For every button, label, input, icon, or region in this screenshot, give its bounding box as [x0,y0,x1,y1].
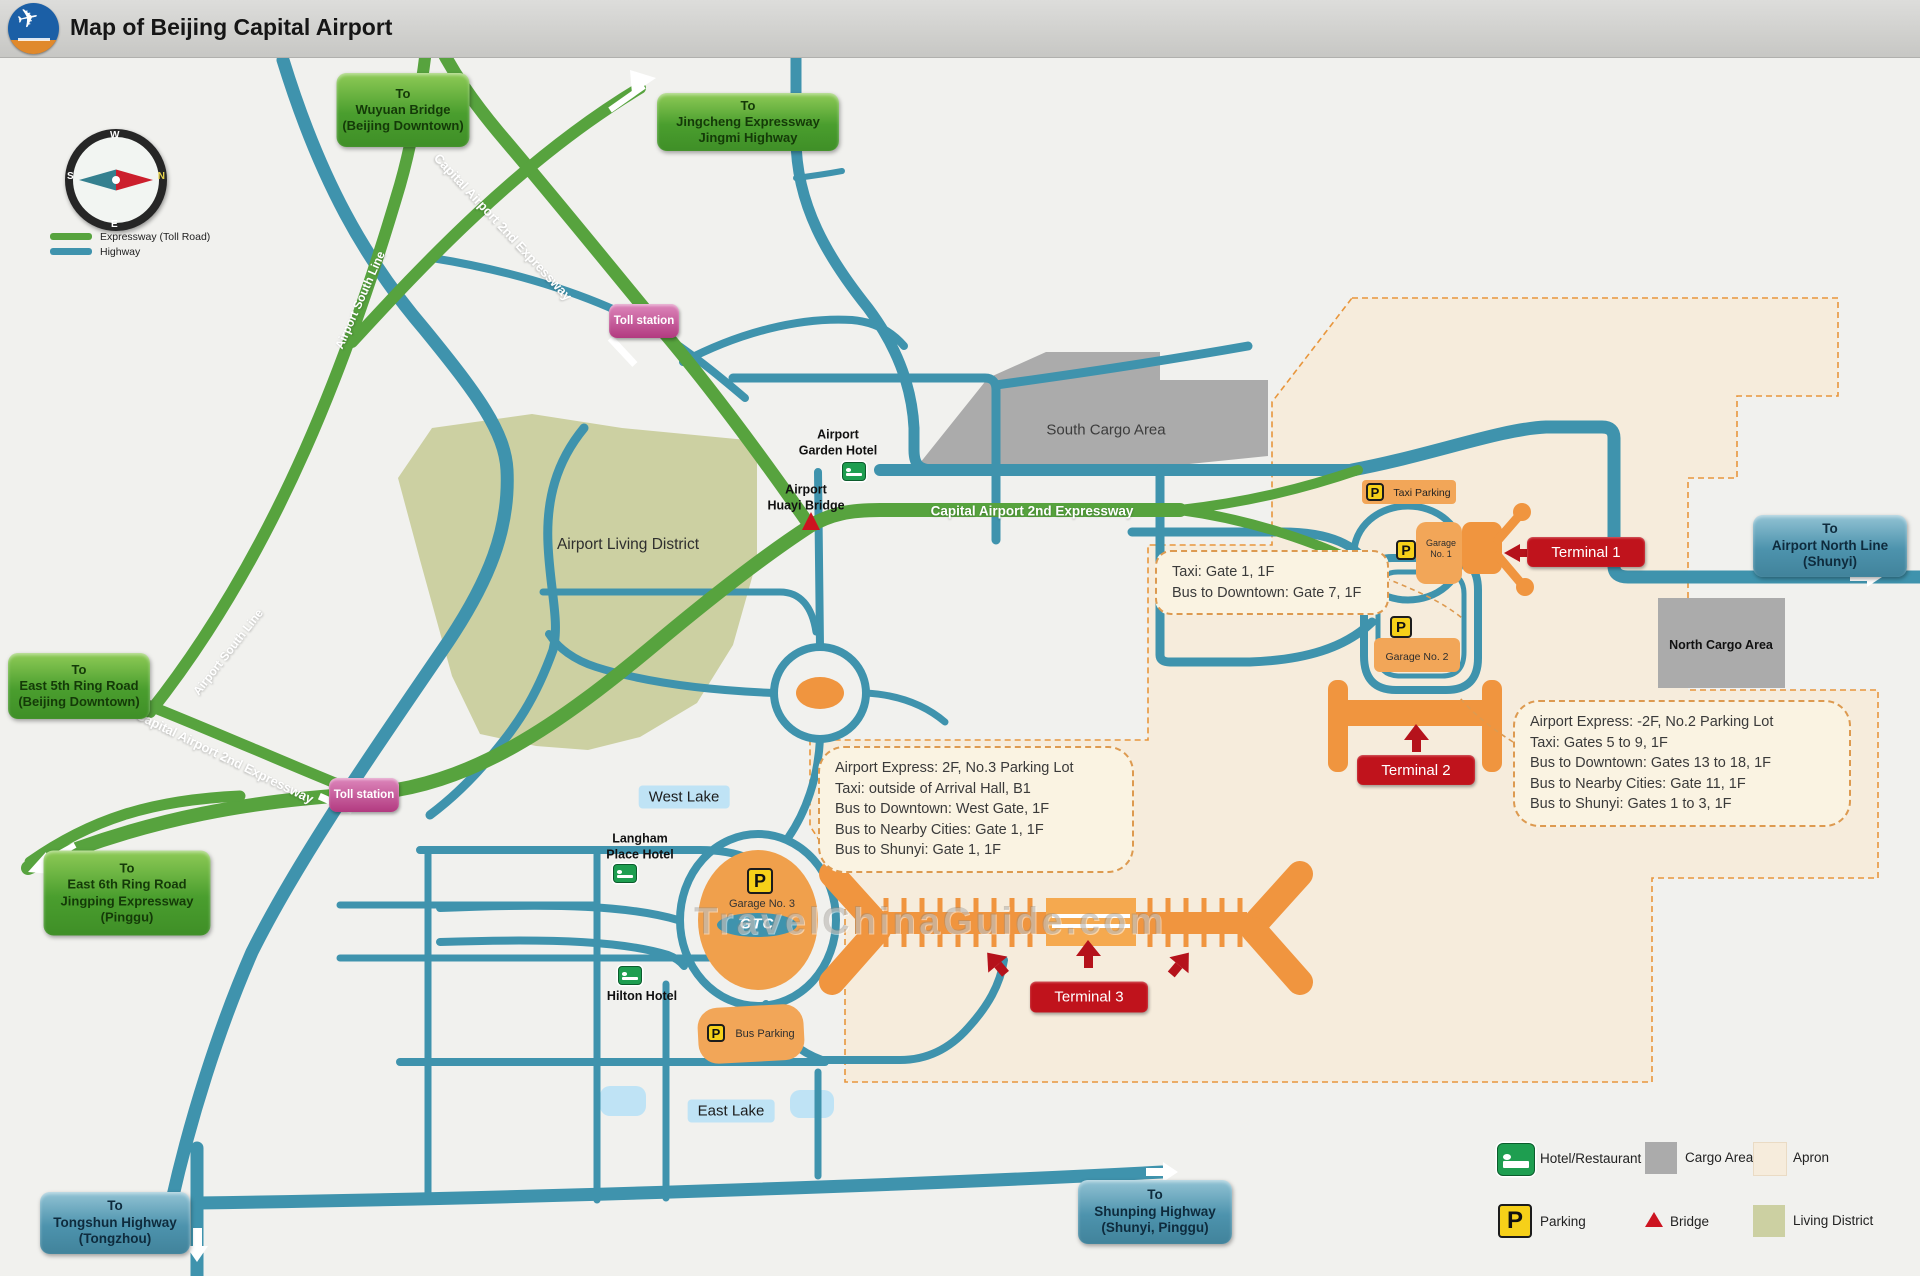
sign-east-6th-ring-road: To East 6th Ring Road Jingping Expresswa… [44,851,211,936]
legend-apron-label: Apron [1793,1150,1829,1165]
hilton-hotel-icon [618,966,642,985]
compass-west: W [110,130,119,141]
legend-bridge-icon [1645,1212,1663,1227]
compass-rose-icon: W N S E [65,129,167,231]
legend-parking-label: Parking [1540,1214,1586,1229]
legend-bridge-label: Bridge [1670,1214,1709,1229]
compass-south: S [67,171,74,182]
taxi-parking-p-icon: P [1366,483,1384,501]
hilton-hotel-label: Hilton Hotel [607,989,677,1003]
sign-east-5th-ring-road: To East 5th Ring Road (Beijing Downtown) [8,653,150,719]
page-title: Map of Beijing Capital Airport [70,14,392,41]
taxi-parking-label: Taxi Parking [1393,487,1450,499]
terminal-2-label: Terminal 2 [1357,755,1475,785]
legend-hotel-label: Hotel/Restaurant [1540,1151,1641,1166]
header-bar: ✈ Map of Beijing Capital Airport [0,0,1920,58]
north-cargo-label: North Cargo Area [1669,638,1773,652]
garage-3-p-icon: P [747,868,773,894]
legend-cargo-label: Cargo Area [1685,1150,1753,1165]
bus-parking-p-icon: P [707,1024,725,1042]
road-label-capital-expressway-east: Capital Airport 2nd Expressway [931,504,1134,519]
terminal-1-building [1462,522,1502,574]
garage-2-p-icon: P [1390,616,1412,638]
garage-2-label: Garage No. 2 [1385,651,1448,663]
garage-1-label: Garage No. 1 [1426,538,1456,560]
langham-place-hotel-icon [613,864,637,883]
legend-parking-icon: P [1498,1204,1532,1238]
legend-living-swatch [1753,1205,1785,1237]
map-of-beijing-capital-airport: ✈ Map of Beijing Capital Airport W N S E… [0,0,1920,1276]
info-box-terminal-2: Airport Express: -2F, No.2 Parking Lot T… [1513,700,1851,827]
legend-expressway-swatch [50,233,92,240]
sign-airport-north-line: To Airport North Line (Shunyi) [1753,515,1907,577]
info-box-terminal-1: Taxi: Gate 1, 1F Bus to Downtown: Gate 7… [1155,550,1389,615]
sign-wuyuan-bridge: To Wuyuan Bridge (Beijing Downtown) [337,73,470,147]
legend-expressway-label: Expressway (Toll Road) [100,231,210,243]
legend-hotel-icon [1497,1143,1535,1176]
legend-highway-label: Highway [100,246,140,258]
legend-apron-swatch [1753,1142,1787,1176]
sign-shunping-highway: To Shunping Highway (Shunyi, Pinggu) [1078,1180,1232,1244]
sign-tongshun-highway: To Tongshun Highway (Tongzhou) [40,1192,190,1254]
airport-garden-hotel-icon [842,462,866,481]
site-logo-icon: ✈ [8,3,59,54]
huayi-bridge-label: Airport Huayi Bridge [767,482,844,513]
bus-parking-label: Bus Parking [735,1028,794,1040]
compass-north: N [158,171,165,182]
south-cargo-label: South Cargo Area [1046,422,1165,439]
terminal-1-label: Terminal 1 [1527,537,1645,567]
legend-highway-swatch [50,248,92,255]
garage-1-p-icon: P [1396,540,1416,560]
west-lake-label: West Lake [639,786,730,809]
terminal-3-label: Terminal 3 [1030,982,1148,1013]
legend-cargo-swatch [1645,1142,1677,1174]
plane-icon: ✈ [14,3,42,36]
langham-place-hotel-label: Langham Place Hotel [606,831,673,862]
sign-jingcheng-expressway: To Jingcheng Expressway Jingmi Highway [657,93,839,151]
east-lake-label: East Lake [688,1100,775,1123]
watermark: TravelChinaGuide.com [694,901,1166,944]
airport-garden-hotel-label: Airport Garden Hotel [799,427,878,458]
road-network [0,0,1920,1276]
compass-east: E [111,219,118,230]
living-district-label: Airport Living District [557,536,699,554]
info-box-terminal-3: Airport Express: 2F, No.3 Parking Lot Ta… [818,746,1134,873]
toll-station-2: Toll station [329,778,399,812]
legend-living-label: Living District [1793,1213,1873,1228]
toll-station-1: Toll station [609,304,679,338]
